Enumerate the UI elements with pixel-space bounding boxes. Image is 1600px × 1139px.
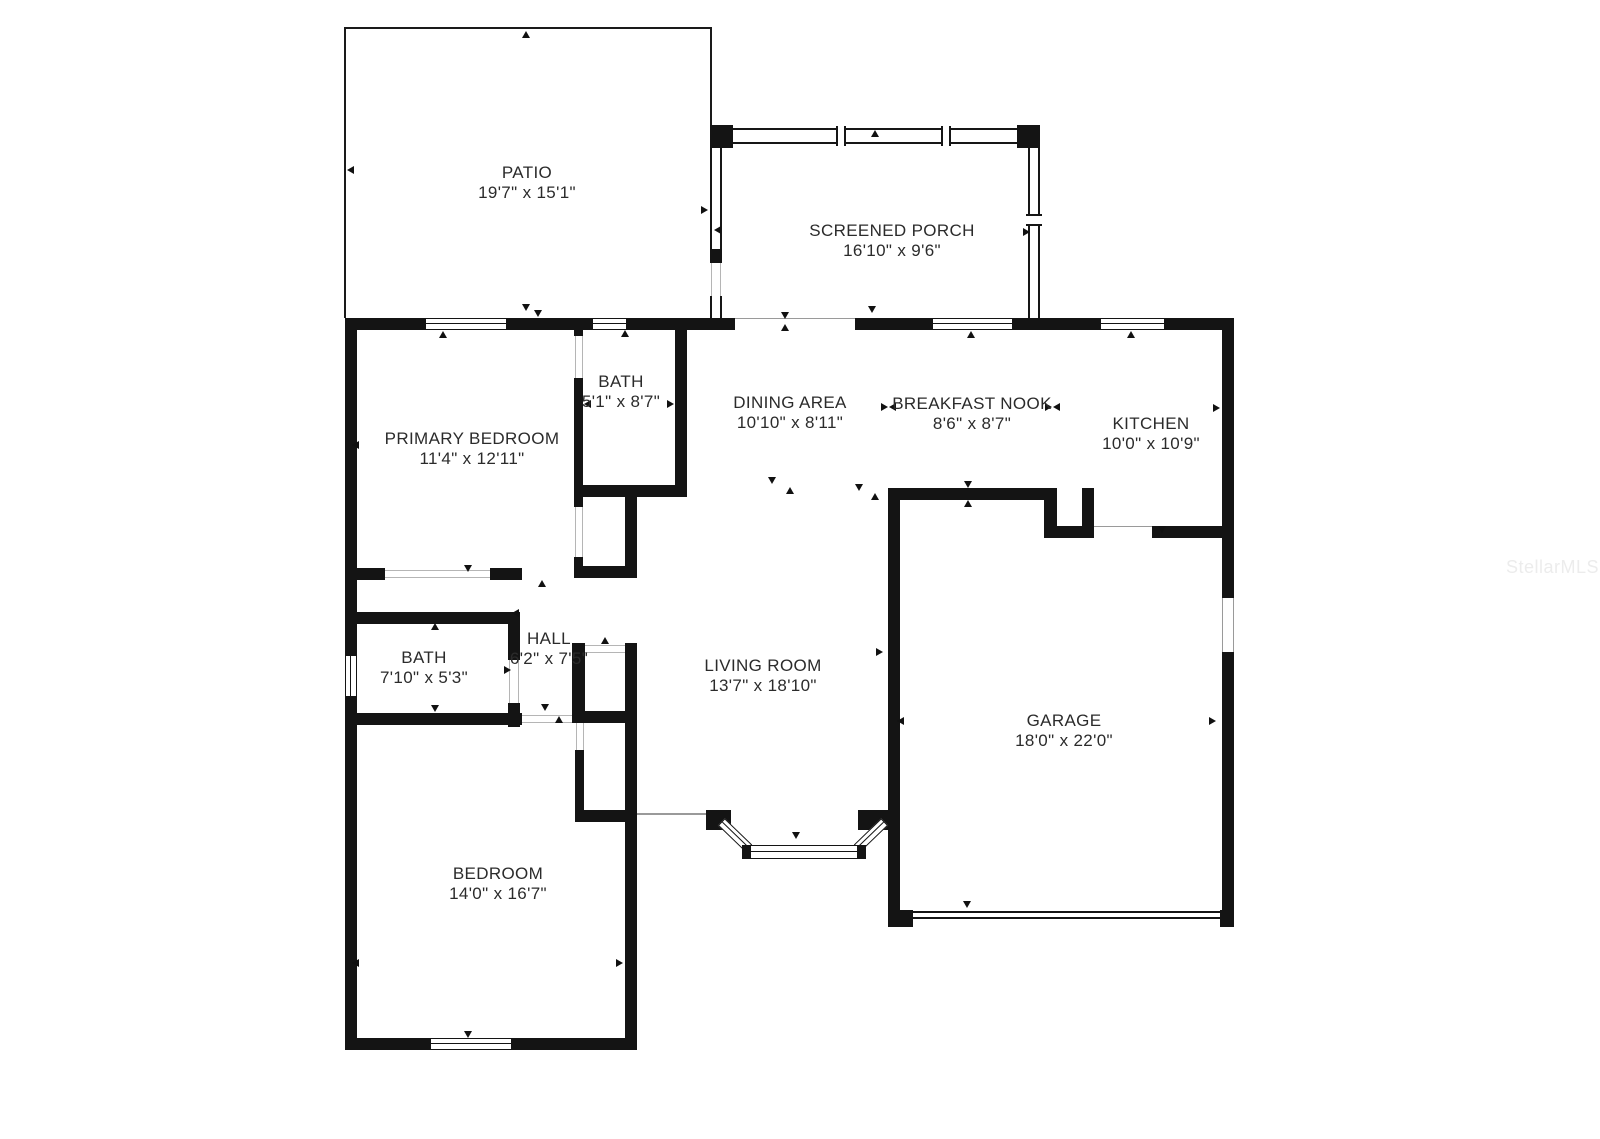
room-dims: 11'4" x 12'11" — [385, 449, 560, 469]
porch-mullion — [941, 126, 951, 146]
bay-window — [750, 845, 858, 859]
porch-screen-door — [711, 263, 721, 296]
dimension-tick — [897, 717, 904, 725]
dimension-tick — [541, 704, 549, 711]
dimension-tick — [1023, 228, 1030, 236]
dimension-tick — [464, 565, 472, 572]
dimension-tick — [967, 331, 975, 338]
kitchen-rear-opening — [1094, 526, 1152, 538]
room-dims: 18'0" x 22'0" — [1015, 731, 1113, 751]
window — [592, 318, 627, 330]
bedroom-east-wall — [625, 643, 637, 1050]
porch-post — [1017, 125, 1040, 148]
room-dims: 19'7" x 15'1" — [478, 183, 576, 203]
closet-wall — [575, 810, 637, 822]
exterior-wall — [507, 318, 592, 330]
dimension-tick — [512, 609, 519, 617]
exterior-wall — [855, 318, 932, 330]
patio-wall-left — [344, 27, 346, 318]
dimension-tick — [876, 648, 883, 656]
window — [430, 1038, 512, 1050]
dimension-tick — [781, 312, 789, 319]
garage-wall-bottom — [888, 910, 913, 927]
dimension-tick — [963, 901, 971, 908]
garage-door — [913, 911, 1220, 919]
closet-door-opening — [585, 645, 625, 653]
room-dims: 5'1" x 8'7" — [582, 392, 660, 412]
room-label-bedroom: BEDROOM 14'0" x 16'7" — [449, 864, 547, 903]
closet-door-opening — [575, 507, 583, 557]
dimension-tick — [871, 493, 879, 500]
patio-wall-right — [710, 27, 712, 127]
room-name: GARAGE — [1015, 711, 1113, 731]
room-name: SCREENED PORCH — [809, 221, 974, 241]
garage-alcove-wall — [1044, 526, 1094, 538]
room-label-garage: GARAGE 18'0" x 22'0" — [1015, 711, 1113, 750]
bath-wall — [583, 485, 687, 497]
room-dims: 16'10" x 9'6" — [809, 241, 974, 261]
dimension-tick — [768, 477, 776, 484]
dimension-tick — [464, 1031, 472, 1038]
dimension-tick — [868, 306, 876, 313]
room-dims: 8'6" x 8'7" — [892, 414, 1052, 434]
dimension-tick — [621, 330, 629, 337]
closet-wall — [572, 711, 637, 723]
room-name: BEDROOM — [449, 864, 547, 884]
patio-wall-top — [344, 27, 712, 29]
living-room-opening-line — [637, 813, 708, 815]
dimension-tick — [431, 705, 439, 712]
window — [425, 318, 507, 330]
room-dims: 7'10" x 5'3" — [380, 668, 468, 688]
porch-screen-wall-right — [1028, 226, 1040, 318]
room-label-patio: PATIO 19'7" x 15'1" — [478, 163, 576, 202]
window — [1100, 318, 1165, 330]
room-label-bath: BATH 7'10" x 5'3" — [380, 648, 468, 687]
exterior-wall — [1222, 652, 1234, 927]
room-name: BATH — [380, 648, 468, 668]
bath-wall — [675, 330, 687, 497]
dimension-tick — [792, 832, 800, 839]
window — [932, 318, 1013, 330]
dimension-tick — [431, 623, 439, 630]
dimension-tick — [881, 403, 888, 411]
dimension-tick — [522, 31, 530, 38]
dimension-tick — [601, 637, 609, 644]
porch-screen-wall-right — [1028, 148, 1040, 216]
room-name: LIVING ROOM — [704, 656, 821, 676]
exterior-wall — [1013, 318, 1100, 330]
floor-plan: PATIO 19'7" x 15'1" SCREENED PORCH 16'10… — [0, 0, 1600, 1139]
porch-screen-wall-left — [710, 296, 722, 318]
room-label-bath-ensuite: BATH 5'1" x 8'7" — [582, 372, 660, 411]
room-name: PATIO — [478, 163, 576, 183]
room-label-screened-porch: SCREENED PORCH 16'10" x 9'6" — [809, 221, 974, 260]
primary-bedroom-wall — [357, 568, 385, 580]
closet-door-opening — [576, 723, 584, 750]
dimension-tick — [786, 487, 794, 494]
room-label-primary-bedroom: PRIMARY BEDROOM 11'4" x 12'11" — [385, 429, 560, 468]
dimension-tick — [1053, 403, 1060, 411]
dimension-tick — [667, 400, 674, 408]
dimension-tick — [555, 716, 563, 723]
room-name: DINING AREA — [733, 393, 846, 413]
room-label-living-room: LIVING ROOM 13'7" x 18'10" — [704, 656, 821, 695]
dimension-tick — [855, 484, 863, 491]
bedroom-door-opening — [522, 715, 572, 723]
dimension-tick — [964, 500, 972, 507]
porch-mullion — [1026, 214, 1042, 226]
porch-post — [710, 125, 733, 148]
exterior-wall — [345, 697, 357, 1050]
dimension-tick — [701, 206, 708, 214]
room-name: HALL — [510, 629, 588, 649]
exterior-wall — [345, 1038, 430, 1050]
primary-bedroom-door-opening — [385, 570, 490, 578]
exterior-wall — [512, 1038, 637, 1050]
dimension-tick — [1127, 331, 1135, 338]
dimension-tick — [964, 481, 972, 488]
dimension-tick — [352, 959, 359, 967]
room-label-hall: HALL 6'2" x 7'5" — [510, 629, 588, 668]
room-dims: 13'7" x 18'10" — [704, 676, 821, 696]
exterior-wall — [345, 318, 357, 655]
room-dims: 14'0" x 16'7" — [449, 884, 547, 904]
room-label-dining-area: DINING AREA 10'10" x 8'11" — [733, 393, 846, 432]
dimension-tick — [871, 130, 879, 137]
exterior-wall — [345, 318, 425, 330]
garage-wall-top — [888, 488, 1044, 500]
room-label-kitchen: KITCHEN 10'0" x 10'9" — [1102, 414, 1200, 453]
room-name: KITCHEN — [1102, 414, 1200, 434]
bedroom-wall-north — [357, 713, 522, 725]
dimension-tick — [347, 166, 354, 174]
garage-wall-bottom — [1220, 910, 1234, 927]
exterior-wall — [627, 318, 735, 330]
closet-wall — [575, 750, 584, 813]
dimension-tick — [616, 959, 623, 967]
exterior-wall — [1222, 318, 1234, 598]
room-dims: 10'10" x 8'11" — [733, 413, 846, 433]
room-dims: 6'2" x 7'5" — [510, 649, 588, 669]
dimension-tick — [714, 226, 721, 234]
dimension-tick — [439, 331, 447, 338]
window — [345, 655, 357, 697]
porch-mullion — [836, 126, 846, 146]
primary-bedroom-wall — [490, 568, 522, 580]
dimension-tick — [352, 441, 359, 449]
garage-window-opening — [1222, 598, 1234, 652]
dimension-tick — [1213, 404, 1220, 412]
dimension-tick — [538, 580, 546, 587]
dimension-tick — [522, 304, 530, 311]
room-label-breakfast-nook: BREAKFAST NOOK 8'6" x 8'7" — [892, 394, 1052, 433]
porch-slider-opening — [735, 318, 855, 330]
room-dims: 10'0" x 10'9" — [1102, 434, 1200, 454]
room-name: PRIMARY BEDROOM — [385, 429, 560, 449]
dimension-tick — [781, 324, 789, 331]
dimension-tick — [534, 310, 542, 317]
garage-wall-left — [888, 488, 900, 927]
room-name: BATH — [582, 372, 660, 392]
watermark: StellarMLS — [1506, 557, 1599, 578]
closet-wall — [574, 566, 637, 578]
room-name: BREAKFAST NOOK — [892, 394, 1052, 414]
porch-post — [710, 249, 722, 263]
dimension-tick — [1158, 526, 1166, 533]
dimension-tick — [1209, 717, 1216, 725]
